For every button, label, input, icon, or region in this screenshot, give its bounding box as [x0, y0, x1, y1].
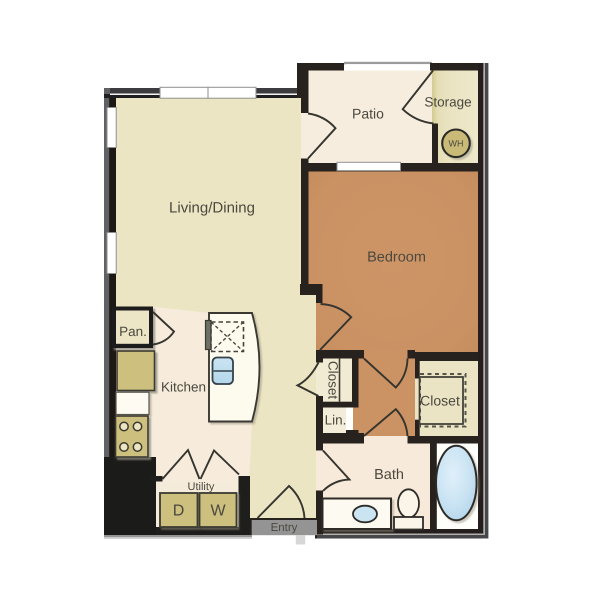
svg-text:Kitchen: Kitchen — [161, 380, 206, 395]
svg-text:Patio: Patio — [352, 106, 384, 122]
svg-text:Bedroom: Bedroom — [367, 250, 426, 266]
svg-text:Entry: Entry — [271, 522, 298, 534]
svg-text:W: W — [210, 503, 226, 520]
svg-text:Utility: Utility — [188, 481, 215, 493]
svg-text:Lin.: Lin. — [325, 413, 347, 428]
svg-text:D: D — [173, 503, 185, 520]
svg-text:Closet: Closet — [420, 393, 460, 409]
svg-text:Pan.: Pan. — [119, 324, 147, 339]
svg-text:WH: WH — [449, 138, 464, 148]
svg-text:Storage: Storage — [424, 95, 471, 110]
svg-text:Living/Dining: Living/Dining — [169, 200, 255, 217]
svg-text:Bath: Bath — [374, 467, 404, 483]
svg-text:Closet: Closet — [326, 361, 341, 400]
